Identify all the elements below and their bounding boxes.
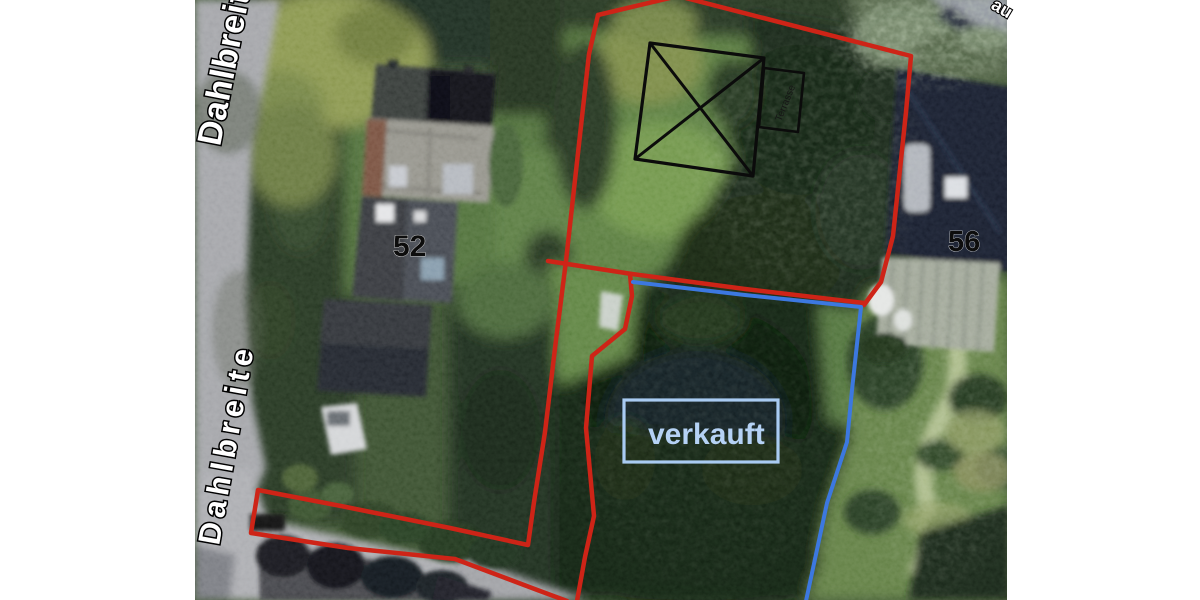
svg-text:verkauft: verkauft [648,418,765,451]
svg-text:56: 56 [948,226,980,258]
svg-text:52: 52 [393,230,426,263]
